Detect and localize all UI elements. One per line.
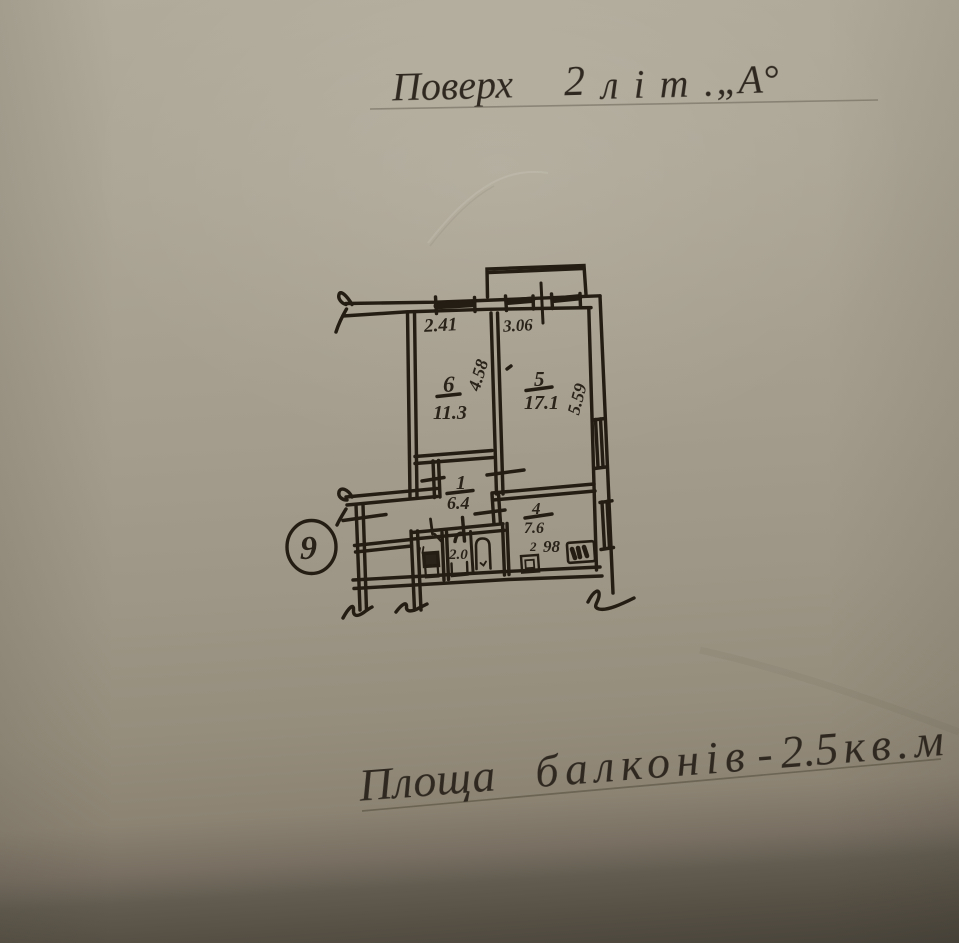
- svg-text:7.6: 7.6: [524, 520, 544, 537]
- svg-text:2.0: 2.0: [448, 547, 468, 563]
- svg-text:4.58: 4.58: [464, 357, 493, 394]
- svg-text:3.06: 3.06: [502, 315, 534, 336]
- svg-text:2: 2: [529, 539, 537, 554]
- svg-text:2.41: 2.41: [423, 314, 458, 337]
- svg-text:11.3: 11.3: [433, 402, 467, 424]
- svg-text:98: 98: [543, 537, 561, 556]
- svg-text:9: 9: [300, 530, 317, 567]
- svg-text:6.4: 6.4: [447, 493, 470, 513]
- svg-text:5.59: 5.59: [563, 381, 590, 417]
- svg-text:17.1: 17.1: [524, 392, 559, 414]
